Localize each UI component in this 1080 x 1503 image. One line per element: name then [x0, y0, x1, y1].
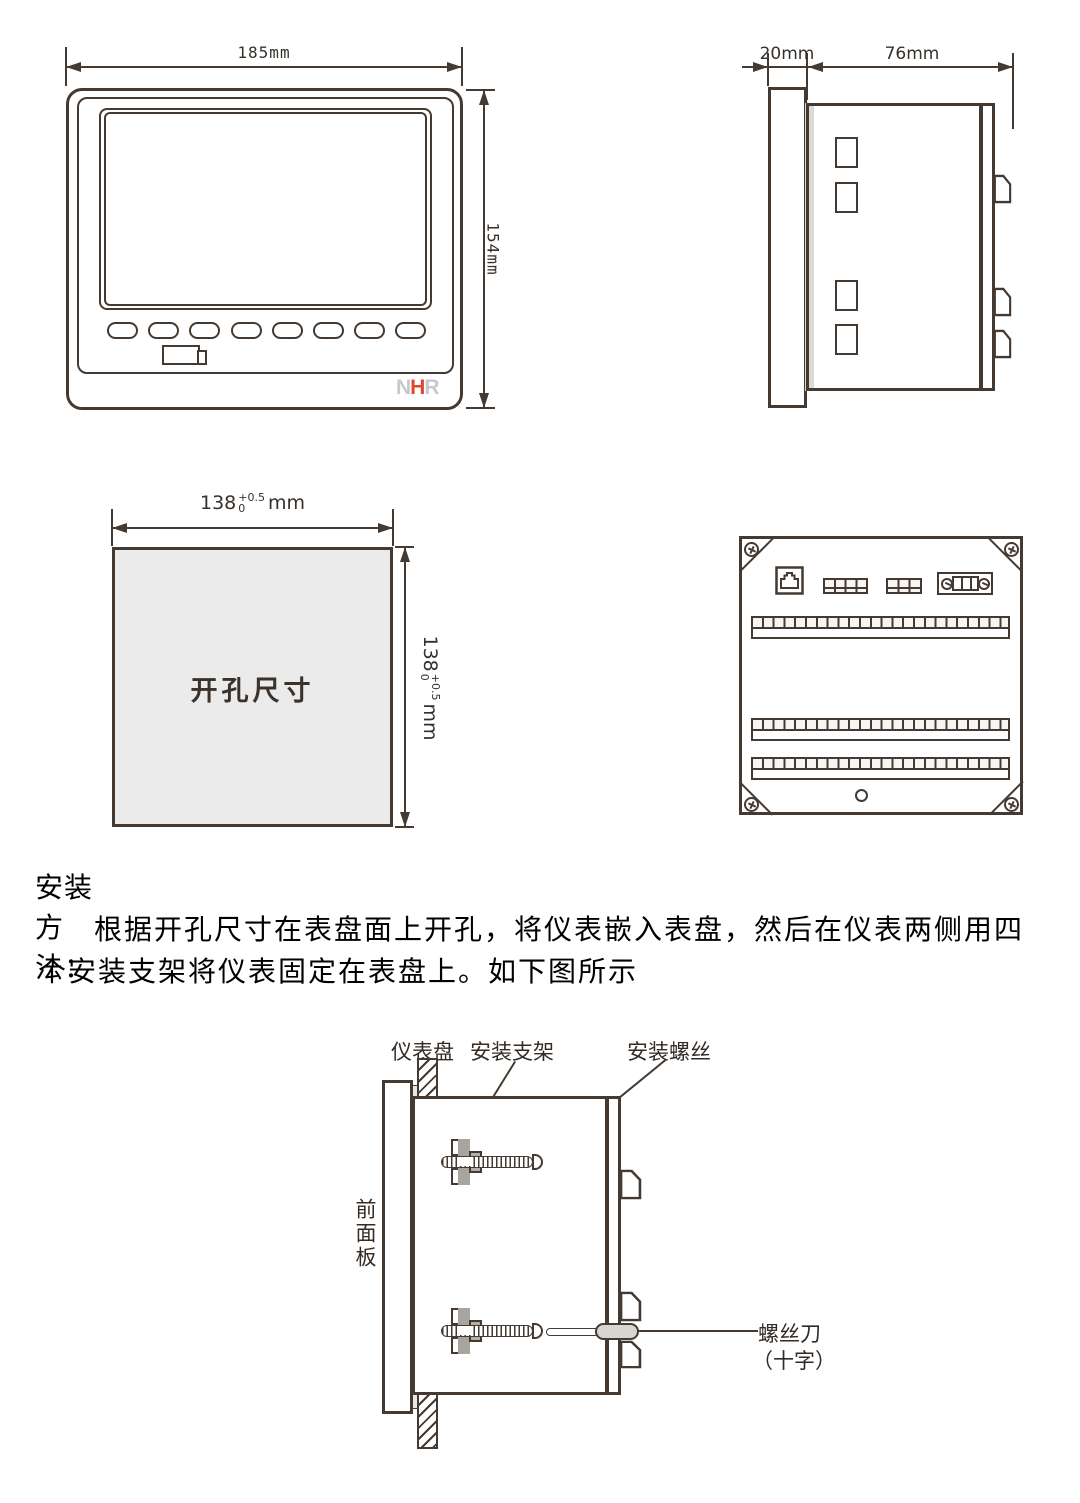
latch-ear	[620, 1292, 641, 1321]
brand-logo: NHR	[396, 376, 439, 400]
screwdriver-type-label: （十字）	[752, 1345, 836, 1375]
mounting-screw	[441, 1325, 533, 1337]
install-paragraph-line2: 个安装支架将仪表固定在表盘上。如下图所示	[38, 950, 638, 990]
screwdriver-label: 螺丝刀	[758, 1318, 821, 1348]
usb-port	[162, 345, 200, 365]
bracket-label: 安装支架	[470, 1036, 554, 1066]
arrowhead-right	[998, 62, 1013, 72]
logo-letter-n: N	[396, 376, 410, 399]
latch-ear	[620, 1341, 641, 1368]
dim-line	[404, 547, 406, 827]
terminal-screw	[978, 578, 990, 590]
dim-line	[742, 66, 1013, 68]
front-key	[272, 322, 303, 339]
front-keys-row	[107, 322, 426, 339]
cutout-height-dim: 138+0.50mm	[419, 635, 441, 740]
latch-ear	[994, 330, 1011, 358]
aux-connector	[823, 578, 868, 594]
arrowhead-up	[479, 90, 489, 105]
dim-line	[66, 66, 462, 68]
front-key	[395, 322, 426, 339]
ethernet-port-icon	[775, 566, 804, 595]
arrowhead-up	[400, 547, 410, 562]
front-key	[189, 322, 220, 339]
vent-slot	[835, 182, 858, 213]
dim-value: 138	[419, 635, 441, 671]
latch-ear	[620, 1170, 641, 1199]
dim-tol-minus: 0	[419, 674, 430, 701]
dim-unit: mm	[268, 492, 305, 514]
corner-screw	[1004, 542, 1019, 557]
screwdriver-handle	[595, 1323, 639, 1340]
vent-slot	[835, 280, 858, 311]
screw-label: 安装螺丝	[627, 1036, 711, 1066]
arrowhead-right	[447, 62, 462, 72]
instrument-body	[412, 1096, 608, 1395]
cutout-width-dim: 138+0.50mm	[180, 492, 325, 514]
dim-value: 138	[200, 492, 236, 514]
dim-line	[112, 527, 393, 529]
front-width-dim: 185mm	[214, 43, 314, 62]
panel-hatch-bottom	[417, 1393, 438, 1449]
arrowhead-down	[400, 812, 410, 827]
latch-ear	[994, 175, 1011, 203]
bezel-depth-dim: 20mm	[757, 44, 817, 64]
front-panel-label: 前面板	[350, 1198, 380, 1270]
aux-connector	[886, 578, 922, 594]
logo-letter-h: H	[410, 376, 424, 399]
body-depth-dim: 76mm	[882, 44, 942, 64]
corner-screw	[1004, 797, 1019, 812]
leader-line-screwdriver	[638, 1330, 758, 1332]
rear-rail	[606, 1096, 621, 1395]
front-key	[313, 322, 344, 339]
arrowhead-right	[378, 523, 393, 533]
terminal-strip-base	[751, 729, 1010, 741]
corner-screw	[744, 797, 759, 812]
latch-ear	[994, 288, 1011, 316]
arrowhead-down	[479, 393, 489, 408]
front-key	[148, 322, 179, 339]
mounting-hole	[855, 789, 868, 802]
install-paragraph-line1: 根据开孔尺寸在表盘面上开孔，将仪表嵌入表盘，然后在仪表两侧用四	[38, 908, 1024, 948]
front-height-dim: 154mm	[484, 222, 503, 275]
corner-screw	[744, 542, 759, 557]
dim-tol-plus: +0.5	[430, 674, 441, 701]
logo-letter-r: R	[424, 376, 438, 399]
terminal-strip-base	[751, 768, 1010, 780]
front-key	[107, 322, 138, 339]
side-rear-rail	[980, 103, 995, 391]
front-key	[231, 322, 262, 339]
arrowhead-left	[112, 523, 127, 533]
panel-hatch-top	[417, 1058, 438, 1098]
manual-page: 185mm 154mm NHR 20mm 76mm	[0, 0, 1080, 1503]
mounting-screw	[441, 1156, 533, 1168]
vent-slot	[835, 324, 858, 355]
cutout-title: 开孔尺寸	[152, 669, 353, 708]
dim-tol-minus: 0	[238, 503, 265, 514]
side-body	[806, 103, 982, 391]
terminal-screw	[941, 578, 953, 590]
screw-gap	[458, 1157, 471, 1166]
screw-gap	[458, 1326, 471, 1335]
front-panel-shape	[382, 1080, 413, 1414]
arrowhead-left	[66, 62, 81, 72]
screwdriver-shaft	[546, 1328, 599, 1336]
display-screen-inner	[104, 112, 427, 306]
side-front-bezel	[768, 87, 807, 408]
dim-unit: mm	[419, 703, 441, 740]
power-connector-cells	[952, 576, 979, 591]
front-key	[354, 322, 385, 339]
usb-port-notch	[197, 350, 207, 365]
terminal-strip-base	[751, 627, 1010, 639]
vent-slot	[835, 137, 858, 168]
